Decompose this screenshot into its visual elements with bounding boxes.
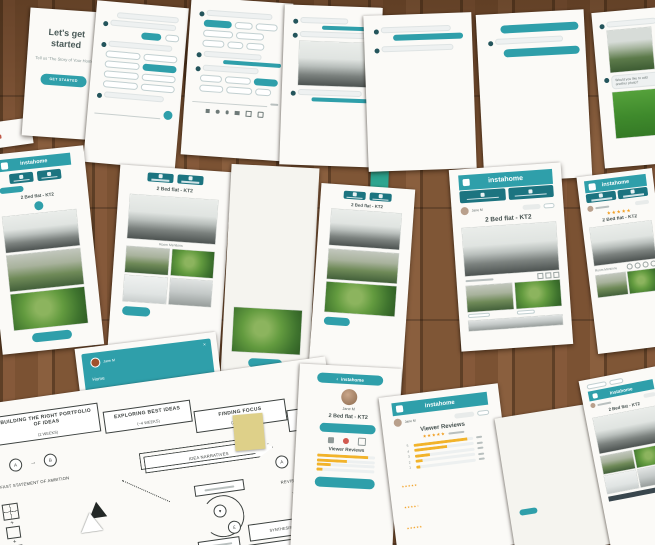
instahome-logo-icon — [1, 162, 9, 170]
paper-chat-long-answer-2 — [476, 9, 593, 182]
user-message-long — [500, 22, 578, 34]
photo-label-pill — [516, 310, 534, 315]
onboarding-title: Let's getstarted — [36, 26, 97, 52]
paper-chat-photo-2: Would you like to add another photo? — [591, 8, 655, 169]
living-room-photo — [2, 209, 79, 253]
bathroom-photo — [604, 470, 639, 494]
ambition-a-b: A→B — [8, 453, 58, 473]
avatar — [393, 418, 402, 427]
paper-listing-3 — [221, 164, 320, 380]
instahome-logo-icon — [396, 405, 404, 413]
date-pill — [635, 200, 649, 206]
garden-aerial-photo — [627, 268, 655, 293]
home-icon — [257, 112, 263, 118]
bot-avatar — [293, 33, 298, 38]
phase-box-2: EXPLORING BEST IDEAS(~4 WEEKS) — [103, 400, 193, 434]
bot-message — [381, 25, 451, 33]
option-pill — [143, 54, 178, 64]
garden-aerial-photo — [170, 249, 214, 278]
onboarding-subtitle: Tell us 'The Story of Your Home' — [35, 55, 95, 65]
option-pill — [235, 22, 253, 30]
bot-avatar — [103, 21, 108, 26]
garden-aerial-photo — [325, 282, 397, 317]
tab-my-home — [343, 191, 366, 201]
option-pill-grid — [103, 50, 178, 93]
user-message-long — [504, 46, 580, 58]
thumb-icon — [537, 273, 543, 279]
tab-my-home — [459, 188, 505, 203]
date-pill — [522, 203, 540, 209]
paper-listing-1: instahome 2 Bed flat - KT2 — [0, 145, 104, 355]
bot-avatar — [199, 11, 204, 16]
option-pill-selected — [141, 32, 162, 41]
dotted-connector — [122, 480, 170, 502]
chat-input-bar — [192, 95, 278, 108]
living-room-photo — [298, 41, 373, 88]
bot-avatar — [293, 19, 298, 24]
listing-footer — [122, 306, 210, 321]
option-pill — [104, 70, 139, 80]
avatar — [90, 357, 101, 368]
bot-message — [104, 91, 164, 102]
phase-box-1: BUILDING THE RIGHT PORTFOLIO OF IDEAS(2 … — [0, 403, 101, 446]
option-pill-selected — [204, 20, 232, 29]
option-pill — [236, 32, 264, 41]
living-room-photo — [462, 222, 559, 276]
rating-label: 3 — [408, 454, 412, 458]
kpi-flow: + + — [1, 503, 26, 545]
get-started-button: GET STARTED — [40, 73, 87, 87]
garden-aerial-photo — [514, 280, 561, 309]
listing-title: 2 Bed flat - KT2 — [311, 412, 385, 422]
bot-message — [206, 10, 272, 21]
attachment-toolbar — [192, 107, 278, 119]
bot-avatar — [374, 48, 379, 53]
bottom-action-button — [315, 476, 375, 489]
garden-house-photo — [327, 249, 399, 284]
bot-avatar — [291, 91, 296, 96]
gallery-icon — [245, 111, 251, 117]
avatar — [587, 205, 594, 212]
room-icon — [626, 263, 633, 270]
avatar-photo — [341, 389, 358, 406]
bot-message — [108, 40, 172, 52]
mic-icon — [226, 110, 229, 114]
avatar — [460, 207, 469, 216]
tab-my-home — [9, 172, 34, 184]
option-pill — [203, 30, 233, 39]
option-pill — [202, 40, 224, 49]
triangle-outline — [79, 511, 103, 533]
text-lines — [506, 414, 585, 427]
thumb-icon — [553, 272, 559, 278]
menu-user-name: Jane M — [103, 358, 115, 363]
garden-house-photo — [596, 272, 628, 297]
close-icon: × — [203, 342, 207, 348]
play-story-button — [33, 201, 43, 211]
rating-label: 1 — [409, 465, 413, 469]
rating-label: 2 — [408, 460, 412, 464]
user-message-long — [393, 32, 463, 40]
photo-pair — [466, 280, 562, 318]
more-pill — [543, 202, 554, 208]
instahome-logo-icon — [588, 183, 596, 191]
stat-icon — [358, 438, 366, 446]
chat-input-bar — [94, 105, 172, 121]
option-pill — [227, 41, 243, 49]
option-pill — [104, 60, 139, 70]
contact-button — [122, 306, 151, 317]
avatar — [590, 403, 596, 409]
living-room-photo — [590, 220, 655, 265]
date-pill — [454, 411, 474, 418]
option-pill — [255, 23, 277, 32]
rating-bars — [316, 453, 375, 473]
instahome-logo-icon — [592, 392, 598, 398]
primary-action-button — [319, 423, 375, 435]
paper-listing-6: instahome ★★★★★ 2 Bed flat - KT2 Room Me… — [576, 168, 655, 354]
option-pill — [200, 74, 222, 83]
bot-avatar — [604, 78, 609, 83]
bot-avatar — [374, 29, 379, 34]
stat-icon — [328, 437, 334, 443]
small-action-pill — [0, 186, 24, 194]
photo-label-pill — [468, 313, 490, 319]
room-icon — [634, 262, 641, 269]
paper-viewer-reviews: instahome Jane M Viewer Reviews ★★★★★ 5 … — [379, 383, 518, 545]
listing-action-button — [324, 317, 350, 327]
option-pill — [165, 34, 180, 42]
bot-message-add-photo: Would you like to add another photo? — [611, 71, 655, 89]
room-mentions-label: Room Mentions — [595, 266, 618, 273]
small-action-pill — [519, 507, 538, 516]
grid-icon — [206, 109, 210, 113]
owner-name: Jane M — [404, 419, 416, 424]
paper-listing-5: instahome Jane M 2 Bed flat - KT2 — [449, 162, 573, 351]
tab-offers — [37, 169, 62, 181]
photo-grid — [123, 246, 215, 307]
bot-avatar — [97, 93, 102, 98]
option-pill — [255, 88, 271, 96]
room-icon — [650, 260, 655, 267]
rating-label: 5 — [406, 443, 410, 447]
option-pill — [246, 43, 264, 51]
send-button — [163, 111, 173, 121]
learning-loop: ♥ £ — [186, 478, 259, 545]
option-pill-selected — [142, 63, 177, 73]
garden-aerial-photo — [634, 444, 655, 468]
bot-message — [300, 17, 348, 25]
app-header-pill: ‹instahome — [317, 372, 383, 385]
tab-offers — [177, 174, 204, 185]
living-room-photo — [127, 194, 218, 244]
mail-icon — [235, 111, 240, 115]
bot-avatar — [599, 24, 604, 29]
living-room-photo — [329, 209, 401, 250]
bot-avatar — [488, 41, 493, 46]
option-pill — [141, 73, 176, 83]
room-icon — [642, 261, 649, 268]
bathroom-photo — [123, 275, 167, 304]
paper-chat-options-1 — [83, 0, 189, 169]
fast-statement-label: FAST STATEMENT OF AMBITION — [0, 475, 70, 490]
garden-house-photo — [466, 283, 513, 312]
garden-tree-photo — [607, 27, 654, 73]
option-pill-rows — [202, 20, 284, 53]
bot-message — [298, 89, 362, 97]
kitchen-photo — [168, 278, 212, 307]
option-pill — [103, 80, 138, 90]
tab-offers — [369, 192, 392, 202]
bot-message — [300, 31, 374, 40]
bot-message — [203, 65, 259, 75]
instahome-logo-icon — [462, 179, 469, 186]
favourite-icon — [343, 438, 349, 444]
option-pill-rows — [199, 74, 280, 97]
review-list: ★★★★★ ★★★★☆ ★★★★★ ★★★★☆ ★★★★★ — [400, 463, 508, 545]
owner-name: Jane M — [472, 205, 520, 212]
back-icon: ‹ — [336, 376, 338, 381]
grass-photo — [612, 89, 655, 139]
option-pill — [105, 50, 140, 60]
option-pill — [225, 76, 251, 85]
contact-owner-button — [32, 329, 73, 342]
bot-avatar — [196, 52, 201, 57]
profile-icon-row — [310, 435, 384, 447]
tab-my-home — [147, 172, 174, 183]
option-pill-selected — [254, 78, 278, 87]
camera-icon — [216, 110, 220, 114]
option-pill — [199, 84, 223, 93]
user-message — [311, 97, 371, 103]
bot-message — [495, 35, 563, 45]
bot-message — [381, 44, 453, 53]
text-lines — [34, 69, 94, 73]
option-pill — [226, 86, 252, 95]
option-pill — [140, 83, 175, 93]
tab-offers — [508, 185, 554, 200]
wall-scene: Let's getstarted Tell us 'The Story of Y… — [0, 0, 655, 545]
sticky-note — [232, 413, 265, 451]
garden-aerial-photo — [10, 287, 87, 331]
garden-house-photo — [125, 246, 169, 275]
thumb-icon — [545, 272, 551, 278]
garden-house-photo — [6, 248, 83, 292]
header-tabs — [131, 171, 219, 186]
paper-chat-options-2 — [181, 0, 294, 161]
more-pill — [477, 409, 490, 415]
garden-aerial-photo — [232, 307, 302, 354]
bot-avatar — [101, 42, 106, 47]
bot-avatar — [195, 66, 200, 71]
rating-label: 4 — [407, 449, 411, 453]
date-pill — [643, 391, 655, 397]
bot-message — [203, 51, 261, 61]
paper-chat-long-answer-1 — [363, 12, 476, 172]
